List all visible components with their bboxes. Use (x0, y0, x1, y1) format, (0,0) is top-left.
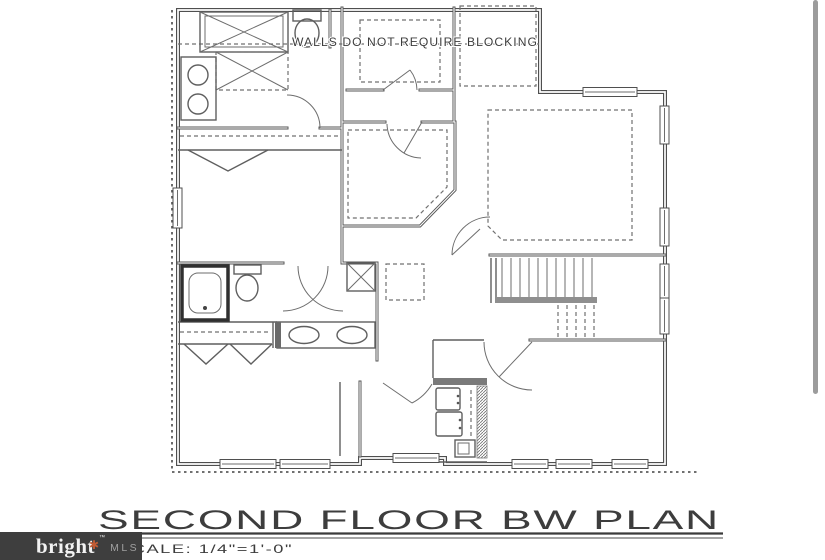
brand-name: bright (36, 536, 95, 557)
toilet-fixture (234, 265, 261, 301)
mls-label: MLS (110, 542, 139, 554)
hatched-wall (477, 386, 487, 458)
brightmls-watermark: bright ✱ ™ MLS (0, 532, 142, 560)
bathtub-fixture (182, 266, 228, 320)
staircase (497, 258, 597, 337)
scrollbar-thumb[interactable] (813, 0, 818, 394)
trademark-symbol: ™ (99, 535, 105, 541)
double-vanity-sinks (275, 322, 375, 348)
blocking-note-label: WALLS DO NOT REQUIRE BLOCKING (292, 37, 538, 49)
laundry-fixtures (433, 378, 487, 458)
dashed-ceiling-and-closet-lines (178, 6, 632, 332)
laundry-shelf (433, 378, 487, 385)
windows (173, 88, 669, 469)
washer-fixture (436, 388, 460, 410)
laundry-sink (455, 440, 475, 457)
hall-bath-fixtures (182, 263, 375, 348)
door-swings (283, 70, 532, 403)
stair-landing-rail (497, 297, 597, 303)
dryer-fixture (436, 412, 462, 436)
shower-fixture (200, 12, 288, 90)
exterior-walls (178, 10, 665, 464)
brand-asterisk-icon: ✱ (89, 538, 99, 552)
plumbing-chase (347, 263, 375, 291)
floor-plan-drawing: WALLS DO NOT REQUIRE BLOCKING SECOND FLO… (0, 0, 825, 560)
vanity-sinks (181, 57, 216, 120)
title-underline (96, 534, 723, 539)
plan-title: SECOND FLOOR BW PLAN (98, 505, 720, 535)
scale-label: SCALE: 1/4"=1'-0" (118, 542, 293, 556)
master-bath-fixtures (181, 10, 321, 120)
floorplan-photo: WALLS DO NOT REQUIRE BLOCKING SECOND FLO… (0, 0, 825, 560)
interior-walls (178, 8, 665, 462)
